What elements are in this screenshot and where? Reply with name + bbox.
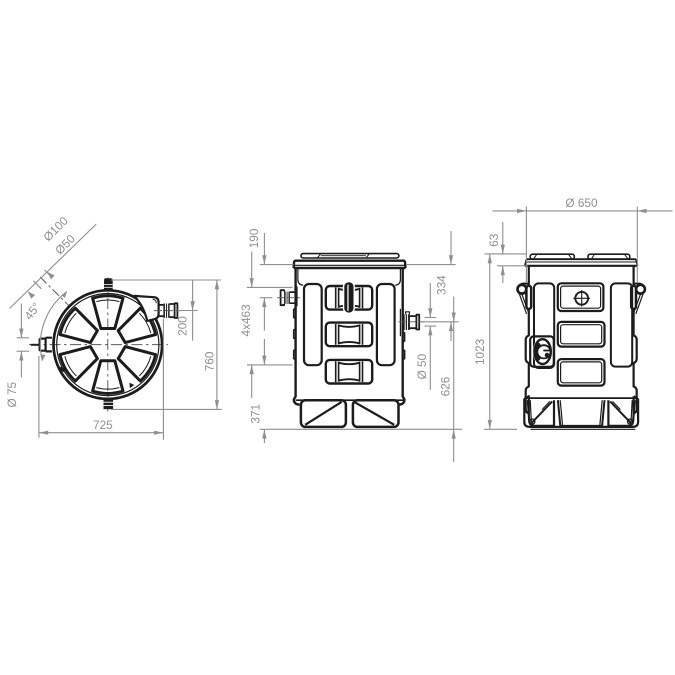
svg-text:Ø 50: Ø 50: [415, 353, 429, 379]
svg-text:334: 334: [434, 275, 448, 295]
svg-text:1023: 1023: [473, 338, 487, 365]
svg-text:Ø 75: Ø 75: [5, 381, 19, 407]
svg-text:63: 63: [487, 233, 501, 247]
svg-text:760: 760: [202, 351, 216, 371]
svg-text:626: 626: [439, 376, 453, 396]
svg-text:200: 200: [176, 316, 190, 336]
svg-text:4x463: 4x463: [239, 304, 253, 337]
svg-text:371: 371: [248, 404, 262, 424]
svg-text:Ø 650: Ø 650: [565, 196, 598, 210]
svg-text:725: 725: [93, 418, 113, 432]
svg-text:190: 190: [247, 228, 261, 248]
